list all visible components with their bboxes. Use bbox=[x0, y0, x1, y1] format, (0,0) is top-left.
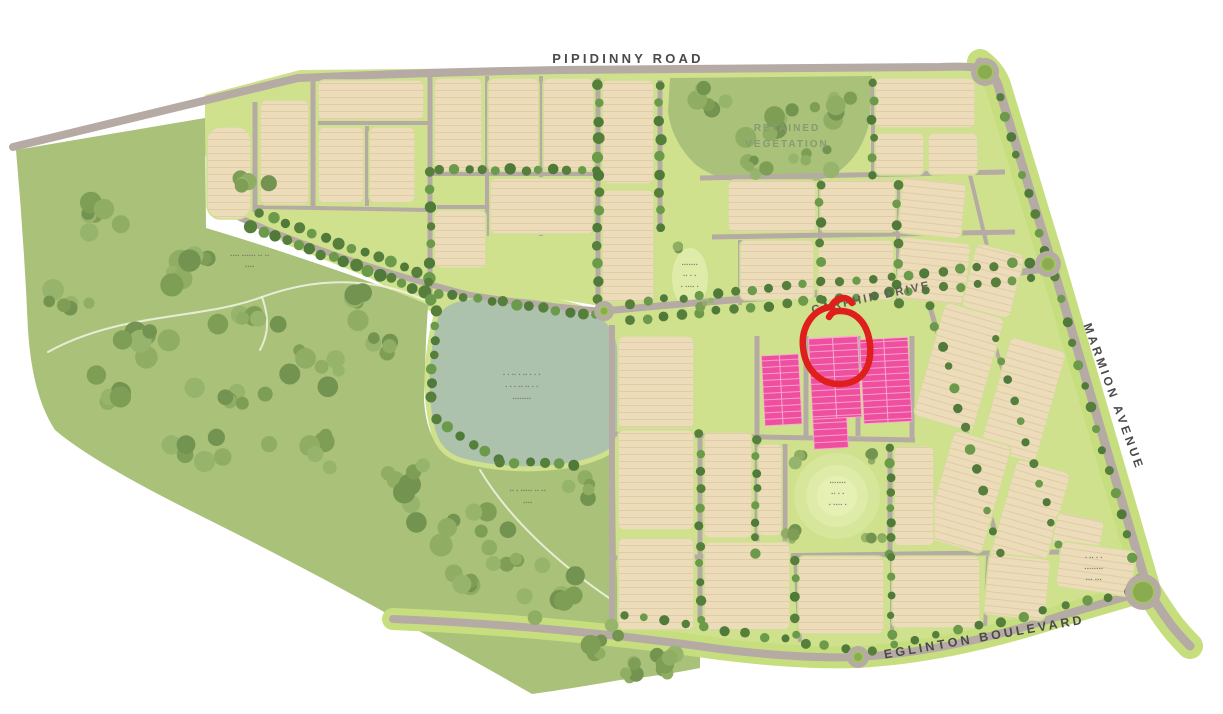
svg-text:▪▪▪▪▪▪▪▪: ▪▪▪▪▪▪▪▪ bbox=[513, 396, 532, 402]
pipidinny-road-label: PIPIDINNY ROAD bbox=[552, 51, 703, 66]
svg-text:▪▪ ▪ ▪: ▪▪ ▪ ▪ bbox=[683, 273, 696, 279]
svg-text:▪▪ ▪ ▪: ▪▪ ▪ ▪ bbox=[831, 491, 844, 497]
retained-vegetation-label-line1: RETAINED bbox=[754, 123, 820, 134]
southeast-block-text: ▪ ▪▪ ▪ ▪ bbox=[1085, 555, 1103, 561]
retained-vegetation-label-line2: VEGETATION bbox=[745, 139, 829, 150]
central-park-text: ▪▪▪▪▪▪▪ bbox=[830, 480, 847, 486]
svg-text:▪▪▪▪: ▪▪▪▪ bbox=[523, 500, 533, 506]
roundabout-lake bbox=[594, 301, 614, 321]
masterplan-map: PIPIDINNY ROAD CARPHIN DRIVE MARMION AVE… bbox=[0, 0, 1223, 714]
svg-text:▪ ▪▪▪▪ ▪: ▪ ▪▪▪▪ ▪ bbox=[681, 284, 699, 290]
lake bbox=[430, 298, 618, 467]
svg-text:▪▪▪▪: ▪▪▪▪ bbox=[245, 264, 255, 270]
roundabout-top-right bbox=[971, 58, 999, 86]
north-park-text: ▪▪▪▪▪▪▪ bbox=[682, 262, 699, 268]
roundabout-bottom-right bbox=[1125, 574, 1161, 610]
roundabout-bottom-center bbox=[847, 646, 869, 668]
masterplan-svg: PIPIDINNY ROAD CARPHIN DRIVE MARMION AVE… bbox=[0, 0, 1223, 714]
roundabout-right bbox=[1035, 251, 1061, 277]
svg-text:▪▪▪▪▪▪▪▪: ▪▪▪▪▪▪▪▪ bbox=[1085, 566, 1104, 572]
bushland-south-text: ▪▪ ▪ ▪▪▪▪▪ ▪▪ ▪▪ bbox=[510, 488, 546, 494]
bushland-west-text: ▪▪▪▪ ▪▪▪▪▪▪ ▪▪ ▪▪ bbox=[230, 253, 269, 259]
svg-text:▪▪▪ ▪▪▪: ▪▪▪ ▪▪▪ bbox=[1086, 577, 1102, 583]
svg-text:▪ ▪ ▪ ▪▪ ▪▪ ▪ ▪: ▪ ▪ ▪ ▪▪ ▪▪ ▪ ▪ bbox=[505, 384, 538, 390]
svg-text:▪ ▪▪▪▪ ▪: ▪ ▪▪▪▪ ▪ bbox=[829, 502, 847, 508]
lake-text: ▪ ▪ ▪▪ ▪ ▪▪ ▪ ▪ ▪ bbox=[503, 372, 541, 378]
